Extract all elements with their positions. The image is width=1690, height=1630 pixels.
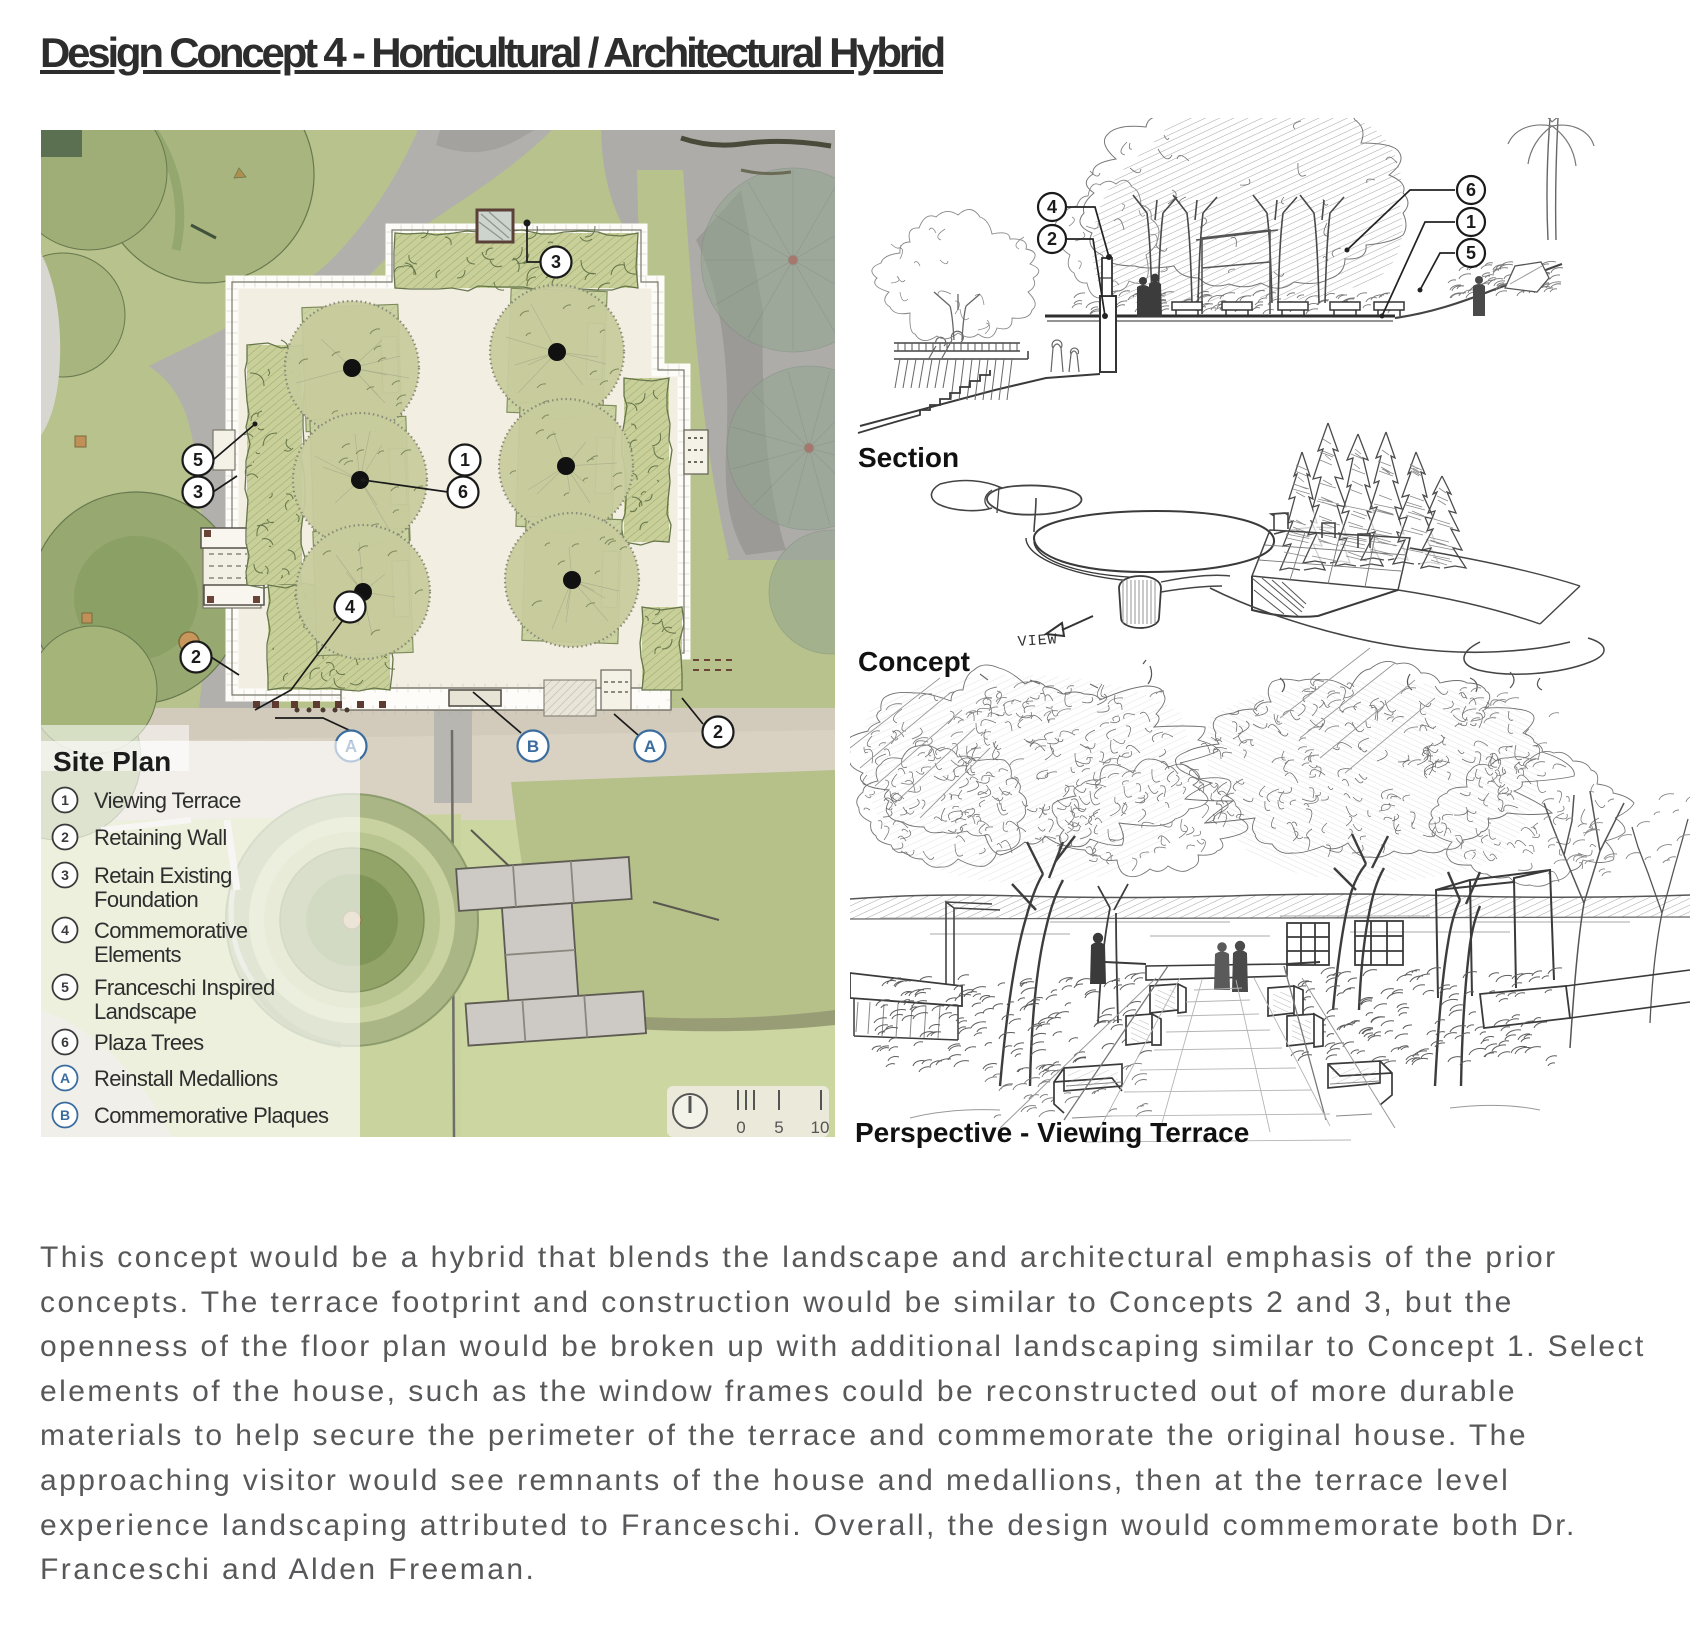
- svg-text:10: 10: [811, 1118, 830, 1137]
- svg-text:Commemorative: Commemorative: [94, 918, 248, 943]
- svg-text:0: 0: [736, 1118, 745, 1137]
- svg-text:2: 2: [61, 829, 69, 845]
- svg-text:Elements: Elements: [94, 942, 182, 967]
- svg-text:5: 5: [193, 450, 203, 470]
- svg-text:A: A: [60, 1070, 70, 1086]
- svg-text:Plaza Trees: Plaza Trees: [94, 1030, 204, 1055]
- svg-text:A: A: [644, 737, 656, 756]
- svg-text:Commemorative Plaques: Commemorative Plaques: [94, 1103, 329, 1128]
- svg-text:Viewing Terrace: Viewing Terrace: [94, 788, 241, 813]
- svg-text:2: 2: [713, 722, 723, 742]
- svg-text:3: 3: [193, 482, 203, 502]
- svg-text:Retaining Wall: Retaining Wall: [94, 825, 227, 850]
- svg-text:6: 6: [1466, 180, 1476, 200]
- svg-text:Site Plan: Site Plan: [53, 746, 171, 777]
- svg-text:2: 2: [1047, 229, 1057, 249]
- svg-text:6: 6: [61, 1034, 69, 1050]
- svg-text:Retain Existing: Retain Existing: [94, 863, 232, 888]
- svg-text:4: 4: [1047, 197, 1057, 217]
- svg-text:1: 1: [1466, 212, 1476, 232]
- svg-text:3: 3: [61, 867, 69, 883]
- svg-text:1: 1: [460, 450, 470, 470]
- svg-text:Landscape: Landscape: [94, 999, 197, 1024]
- svg-text:5: 5: [774, 1118, 783, 1137]
- svg-text:Foundation: Foundation: [94, 887, 198, 912]
- svg-text:1: 1: [61, 792, 69, 808]
- svg-text:5: 5: [61, 979, 69, 995]
- svg-text:B: B: [60, 1107, 70, 1123]
- svg-text:3: 3: [551, 252, 561, 272]
- svg-text:2: 2: [191, 647, 201, 667]
- svg-text:6: 6: [458, 482, 468, 502]
- svg-text:5: 5: [1466, 243, 1476, 263]
- svg-text:B: B: [527, 737, 539, 756]
- svg-text:Reinstall Medallions: Reinstall Medallions: [94, 1066, 278, 1091]
- svg-text:VIEW: VIEW: [1017, 631, 1058, 651]
- svg-text:Franceschi Inspired: Franceschi Inspired: [94, 975, 275, 1000]
- svg-text:4: 4: [345, 597, 355, 617]
- svg-text:4: 4: [61, 922, 69, 938]
